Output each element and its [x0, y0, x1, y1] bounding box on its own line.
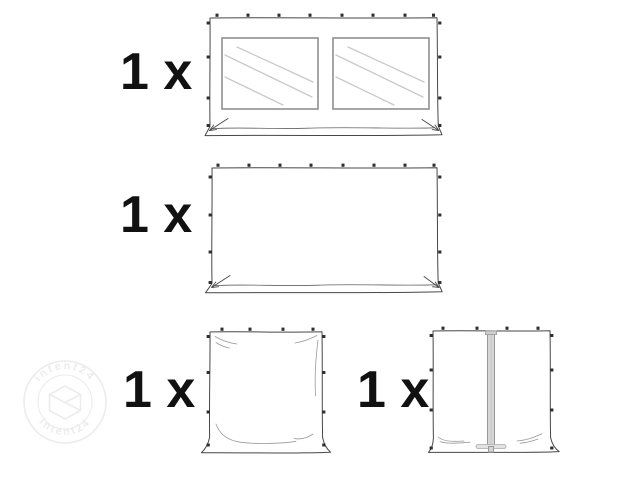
quantity-label: 1 x — [357, 364, 429, 416]
sidewall-two-windows-illustration — [198, 8, 450, 148]
watermark-text-top: intent24 — [32, 360, 98, 384]
attachment-hooks-top — [221, 328, 315, 331]
svg-text:intent24: intent24 — [32, 360, 98, 384]
half-sidewall-illustration — [196, 318, 336, 466]
attachment-hooks-top — [217, 164, 436, 167]
watermark-cube-logo — [50, 386, 81, 419]
intent24-watermark-icon: intent24 intent24 — [20, 358, 112, 450]
quantity-label: 1 x — [120, 189, 192, 241]
zipper-door-sidewall-illustration — [424, 318, 566, 466]
quantity-label: 1 x — [120, 46, 192, 98]
quantity-label: 1 x — [123, 364, 195, 416]
attachment-hooks-top — [216, 14, 436, 17]
plain-sidewall-illustration — [198, 158, 450, 306]
attachment-hooks-top — [442, 327, 540, 330]
window-left — [222, 38, 318, 109]
tent-sidewall-contents-diagram: intent24 intent24 1 x — [0, 0, 639, 479]
window-right — [333, 38, 429, 109]
